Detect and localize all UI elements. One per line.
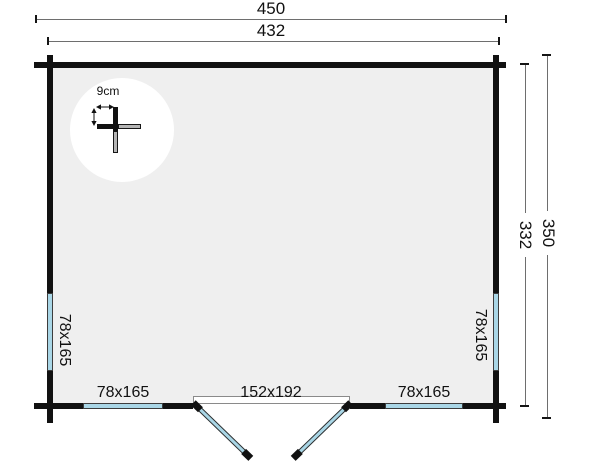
dimension-tick [520,63,529,65]
dimension-line-inner-width [48,41,500,42]
window-right [493,293,499,371]
dimension-label-outer-width: 450 [241,0,301,18]
floor-plan: 9cm 450 432 332 350 78x165 78x165 [0,0,600,465]
dimension-tick [542,417,551,419]
dimension-tick [505,15,507,23]
dimension-tick [542,54,551,56]
window-left [47,293,53,371]
door-size-label: 152x192 [221,385,321,400]
window-size-label-bottom-right: 78x165 [374,385,474,400]
dimension-tick [520,405,529,407]
door-leaf-left [192,402,252,460]
window-bottom-right [385,403,463,409]
dimension-tick [498,37,500,45]
dimension-tick [47,37,49,45]
window-size-label-left: 78x165 [55,312,73,368]
dimension-tick [35,15,37,23]
dimension-label-outer-height: 350 [539,211,557,255]
wall-top [34,62,506,68]
detail-wall-vertical-extension [113,131,118,153]
dimension-line-outer-width [36,19,507,20]
dimension-label-inner-width: 432 [241,22,301,40]
door-leaf-right [292,402,352,460]
wall-thickness-label: 9cm [86,84,130,98]
detail-wall-horizontal-extension [118,124,141,129]
detail-wall-vertical [113,107,118,131]
window-size-label-right: 78x165 [471,307,489,363]
dimension-label-inner-height: 332 [516,213,534,257]
width-arrow-icon [96,103,114,111]
window-size-label-bottom-left: 78x165 [73,385,173,400]
window-bottom-left [83,403,163,409]
